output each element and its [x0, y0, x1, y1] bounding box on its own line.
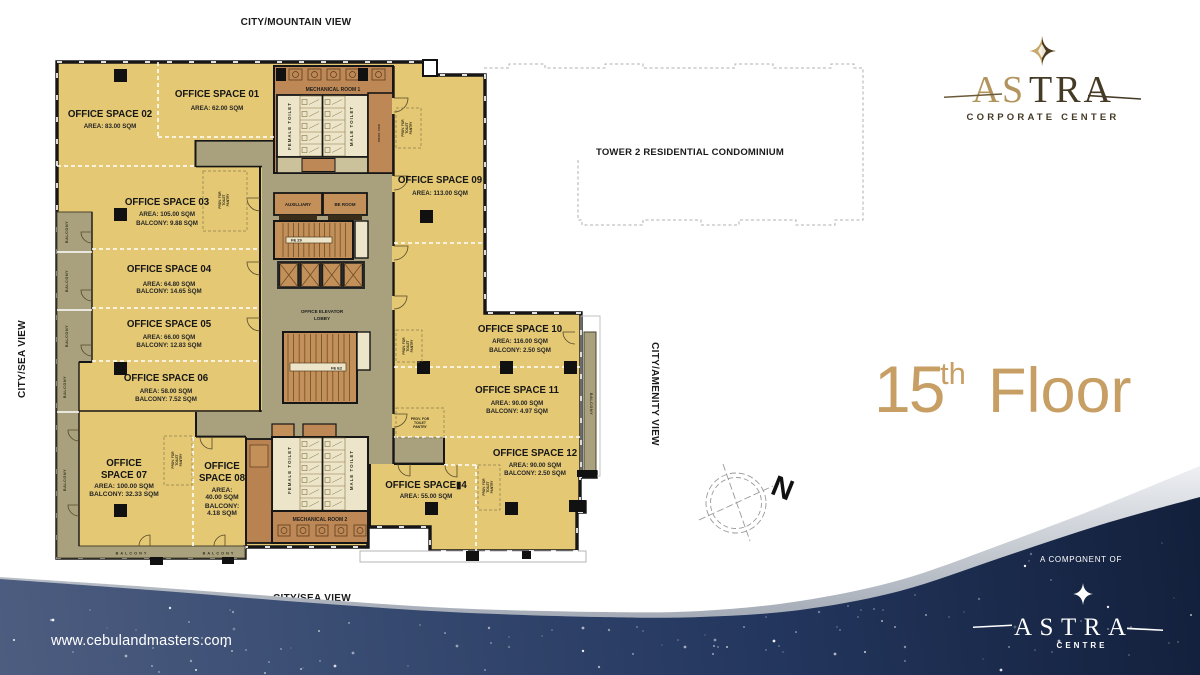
svg-text:MECHANICAL ROOM 2: MECHANICAL ROOM 2 — [293, 517, 348, 523]
svg-text:MECHANICAL ROOM 1: MECHANICAL ROOM 1 — [306, 87, 361, 93]
svg-text:OFFICE SPACE 05: OFFICE SPACE 05 — [127, 319, 212, 330]
svg-text:40.00 SQM: 40.00 SQM — [205, 494, 239, 501]
svg-text:AS: AS — [1014, 614, 1061, 641]
svg-text:th: th — [940, 356, 966, 391]
svg-text:AREA: 105.00 SQM: AREA: 105.00 SQM — [139, 211, 195, 218]
svg-text:OFFICE SPACE 06: OFFICE SPACE 06 — [124, 373, 209, 384]
svg-text:Floor: Floor — [988, 356, 1132, 426]
svg-text:AREA: 90.00 SQM: AREA: 90.00 SQM — [491, 400, 544, 407]
svg-text:OFFICE SPACE 12: OFFICE SPACE 12 — [493, 448, 577, 459]
svg-text:LOBBY: LOBBY — [314, 316, 330, 321]
svg-text:PROV. FOR: PROV. FOR — [377, 123, 381, 142]
svg-text:AREA: 58.00 SQM: AREA: 58.00 SQM — [140, 388, 193, 395]
svg-text:OFFICE SPACE 02: OFFICE SPACE 02 — [68, 109, 152, 120]
svg-text:CENTRE: CENTRE — [1057, 641, 1108, 650]
svg-text:OFFICE SPACE 10: OFFICE SPACE 10 — [478, 324, 562, 335]
svg-text:PANTRY: PANTRY — [413, 425, 427, 429]
svg-text:BALCONY: BALCONY — [589, 393, 593, 415]
svg-text:BALCONY: BALCONY — [65, 221, 69, 243]
svg-text:AREA:: AREA: — [212, 487, 233, 494]
svg-text:BALCONY: BALCONY — [63, 469, 67, 491]
svg-text:AS: AS — [972, 69, 1026, 111]
svg-text:OFFICE SPACE 03: OFFICE SPACE 03 — [125, 197, 210, 208]
svg-text:BALCONY: BALCONY — [63, 376, 67, 398]
svg-text:BALCONY: 7.52 SQM: BALCONY: 7.52 SQM — [135, 396, 197, 403]
svg-text:OFFICE SPACE▮4: OFFICE SPACE▮4 — [385, 480, 467, 491]
svg-text:OFFICE: OFFICE — [204, 461, 240, 472]
svg-text:AREA: 90.00 SQM: AREA: 90.00 SQM — [509, 462, 562, 469]
svg-text:AREA: 62.00 SQM: AREA: 62.00 SQM — [191, 105, 244, 112]
svg-text:BALCONY: 4.97 SQM: BALCONY: 4.97 SQM — [486, 408, 548, 415]
svg-text:BALCONY: 12.83 SQM: BALCONY: 12.83 SQM — [136, 342, 201, 349]
svg-text:BALCONY: BALCONY — [65, 325, 69, 347]
svg-text:CORPORATE CENTER: CORPORATE CENTER — [967, 112, 1120, 123]
svg-text:FEMALE TOILET: FEMALE TOILET — [287, 102, 292, 150]
svg-text:BALCONY: BALCONY — [203, 552, 236, 556]
svg-text:AREA: 66.00 SQM: AREA: 66.00 SQM — [143, 334, 196, 341]
svg-text:AREA: 55.00 SQM: AREA: 55.00 SQM — [400, 493, 453, 500]
svg-text:CITY/AMENITY VIEW: CITY/AMENITY VIEW — [649, 342, 660, 446]
svg-text:AREA: 83.00 SQM: AREA: 83.00 SQM — [84, 123, 137, 130]
svg-text:BALCONY:: BALCONY: — [205, 503, 239, 510]
svg-text:OFFICE ELEVATOR: OFFICE ELEVATOR — [301, 309, 344, 314]
svg-text:BALCONY: 32.33 SQM: BALCONY: 32.33 SQM — [89, 491, 159, 498]
svg-text:AREA: 64.80 SQM: AREA: 64.80 SQM — [143, 281, 196, 288]
svg-text:OFFICE SPACE 09: OFFICE SPACE 09 — [398, 175, 483, 186]
svg-text:OFFICE SPACE 01: OFFICE SPACE 01 — [175, 89, 260, 100]
svg-text:AREA: 116.00 SQM: AREA: 116.00 SQM — [492, 338, 548, 345]
svg-text:TOWER 2 RESIDENTIAL CONDOMINIU: TOWER 2 RESIDENTIAL CONDOMINIUM — [596, 147, 784, 158]
svg-text:PANTRY: PANTRY — [410, 339, 414, 353]
svg-text:FE E2: FE E2 — [331, 366, 343, 371]
svg-text:BALCONY: 2.50 SQM: BALCONY: 2.50 SQM — [489, 347, 551, 354]
svg-text:CITY/SEA VIEW: CITY/SEA VIEW — [17, 320, 28, 398]
svg-text:SPACE 08: SPACE 08 — [199, 473, 246, 484]
svg-text:AUXILLIARY: AUXILLIARY — [285, 202, 311, 207]
svg-text:A COMPONENT OF: A COMPONENT OF — [1040, 555, 1122, 564]
svg-text:FE 29: FE 29 — [291, 238, 302, 243]
svg-text:PANTRY: PANTRY — [226, 193, 230, 207]
svg-text:PANTRY: PANTRY — [490, 480, 494, 494]
svg-text:PANTRY: PANTRY — [179, 453, 183, 467]
svg-text:AREA: 100.00 SQM: AREA: 100.00 SQM — [94, 483, 154, 490]
svg-text:BALCONY: BALCONY — [65, 270, 69, 292]
svg-text:BALCONY: 2.50 SQM: BALCONY: 2.50 SQM — [504, 470, 566, 477]
svg-text:MALE TOILET: MALE TOILET — [349, 450, 354, 490]
svg-text:AREA: 113.00 SQM: AREA: 113.00 SQM — [412, 190, 468, 197]
svg-text:www.cebulandmasters.com: www.cebulandmasters.com — [50, 633, 232, 649]
svg-text:BE ROOM: BE ROOM — [335, 202, 356, 207]
svg-text:TRA: TRA — [1029, 69, 1114, 111]
svg-text:BALCONY: 9.88 SQM: BALCONY: 9.88 SQM — [136, 220, 198, 227]
svg-text:SPACE 07: SPACE 07 — [101, 470, 147, 481]
svg-text:PANTRY: PANTRY — [409, 121, 413, 135]
svg-text:OFFICE SPACE 04: OFFICE SPACE 04 — [127, 264, 212, 275]
svg-text:FEMALE TOILET: FEMALE TOILET — [287, 446, 292, 494]
svg-text:CITY/MOUNTAIN VIEW: CITY/MOUNTAIN VIEW — [241, 17, 352, 28]
svg-text:OFFICE SPACE 11: OFFICE SPACE 11 — [475, 385, 559, 396]
svg-text:TRA: TRA — [1061, 614, 1134, 641]
svg-text:BALCONY: 14.65 SQM: BALCONY: 14.65 SQM — [136, 288, 201, 295]
svg-text:OFFICE: OFFICE — [106, 458, 142, 469]
svg-text:MALE TOILET: MALE TOILET — [349, 106, 354, 146]
svg-text:15: 15 — [874, 352, 943, 426]
svg-text:BALCONY: BALCONY — [116, 552, 149, 556]
svg-text:4.18 SQM: 4.18 SQM — [207, 510, 237, 517]
